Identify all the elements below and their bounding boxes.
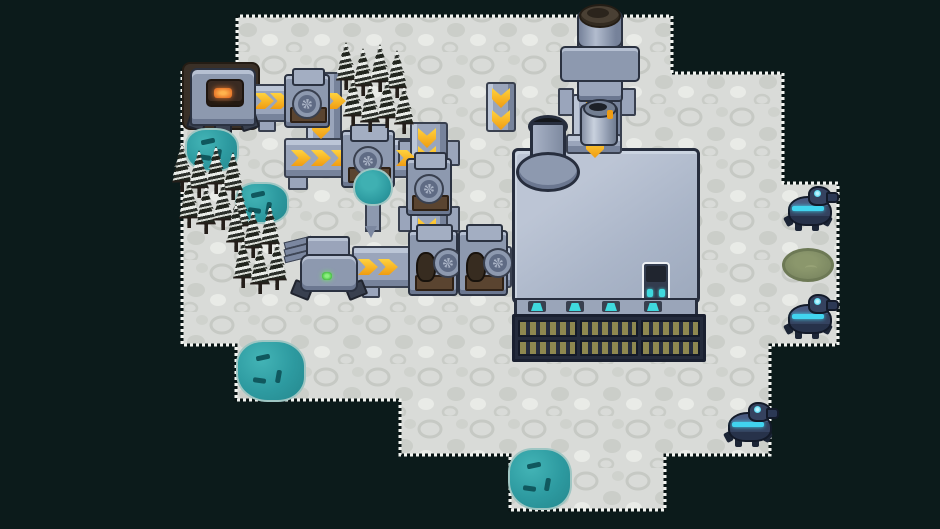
gear-item: [292, 89, 322, 119]
factory-vent-window: [518, 320, 577, 337]
machine-top: [292, 68, 325, 86]
robot-glow-stripe: [792, 314, 824, 319]
ore-processor-machine[interactable]: [284, 74, 330, 128]
gear-item: [483, 248, 513, 278]
factory-vent-window: [518, 340, 577, 357]
ore-vein: [544, 477, 551, 491]
robot-creature[interactable]: [784, 184, 836, 230]
tree-cluster[interactable]: [226, 206, 289, 296]
robot-creature[interactable]: [724, 400, 776, 446]
factory-vent-window: [641, 340, 700, 357]
metal-canister-item[interactable]: [580, 104, 618, 146]
canister-hole: [589, 103, 607, 111]
sapling-root-spike: [365, 226, 377, 238]
robot-eye: [814, 298, 821, 305]
factory-vent-window: [641, 320, 700, 337]
door-light: [659, 289, 665, 297]
crystal-ore-deposit[interactable]: [236, 340, 306, 402]
ore-vein: [201, 137, 216, 145]
ore-vein: [523, 485, 537, 492]
ore-vein: [526, 461, 541, 469]
ore-vein: [275, 369, 282, 383]
robot-antenna: [826, 300, 839, 311]
gear-item: [414, 174, 444, 204]
smelter-fire-icon: [214, 88, 232, 98]
ore-vein: [252, 377, 266, 384]
belt-stub[interactable]: [288, 176, 308, 190]
game-viewport: [0, 0, 940, 529]
ore-vein: [251, 191, 266, 199]
robot-eye: [814, 190, 821, 197]
assembler-machine[interactable]: [458, 230, 508, 296]
moss-pond: [782, 248, 834, 282]
door-window: [646, 266, 666, 282]
generator[interactable]: [294, 236, 360, 300]
furnace[interactable]: [186, 64, 256, 130]
factory-vent-window: [580, 320, 639, 337]
machine-top: [414, 152, 447, 170]
door-light: [647, 289, 653, 297]
crystal-ore-deposit[interactable]: [508, 448, 572, 510]
robot-antenna: [766, 408, 779, 419]
robot-creature[interactable]: [784, 292, 836, 338]
furnace-mouth: [206, 79, 244, 107]
drill-wings: [560, 46, 640, 82]
belt-stub[interactable]: [258, 120, 276, 132]
drill-bit-hole: [587, 8, 609, 18]
chimney-base: [516, 152, 580, 192]
status-light: [322, 272, 332, 280]
robot-antenna: [826, 192, 839, 203]
pond-ripple: [805, 265, 817, 271]
tree-cluster[interactable]: [336, 44, 416, 134]
factory-vent-window: [580, 340, 639, 357]
drill-tower[interactable]: [560, 6, 636, 98]
robot-glow-stripe: [792, 206, 824, 211]
factory-door[interactable]: [642, 262, 670, 302]
ore-vein: [256, 353, 271, 361]
factory-vents: [512, 314, 706, 362]
ore-processor-machine[interactable]: [406, 158, 452, 216]
machine-top: [416, 224, 452, 242]
sapling-crown: [353, 168, 393, 206]
factory-building[interactable]: [512, 148, 694, 350]
robot-glow-stripe: [732, 422, 764, 427]
robot-eye: [754, 406, 761, 413]
assembler-machine[interactable]: [408, 230, 458, 296]
machine-top: [466, 224, 502, 242]
furnace-body: [190, 68, 256, 126]
crystal-sapling[interactable]: [351, 166, 391, 242]
canister-glint: [607, 110, 613, 119]
